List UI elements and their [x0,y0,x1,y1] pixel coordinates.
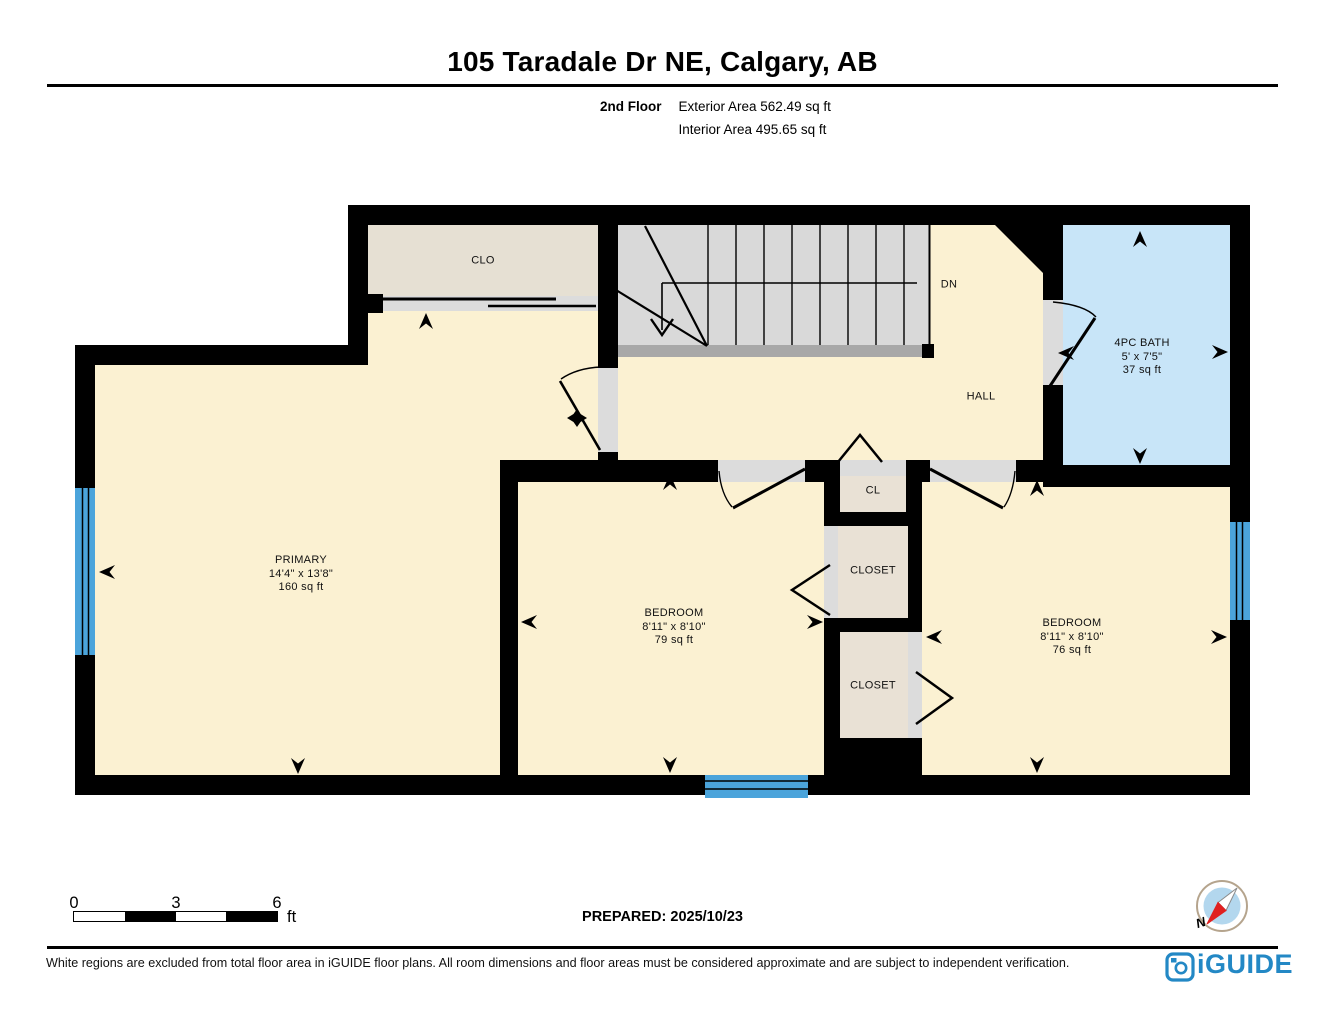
bath-dimensions: 5' x 7'5" [1114,350,1169,364]
label-cl: CL [866,484,881,498]
label-bath: 4PC BATH 5' x 7'5" 37 sq ft [1114,337,1169,378]
label-closet-middle: CLOSET [850,564,896,578]
label-bedroom-right: BEDROOM 8'11" x 8'10" 76 sq ft [1040,617,1103,658]
label-clo: CLO [471,254,495,268]
footer-divider [47,946,1278,949]
label-primary: PRIMARY 14'4" x 13'8" 160 sq ft [269,554,333,595]
bedroom-middle-dimensions: 8'11" x 8'10" [642,620,705,634]
bath-name: 4PC BATH [1114,337,1169,351]
primary-area: 160 sq ft [269,581,333,595]
bedroom-middle-area: 79 sq ft [642,634,705,648]
iguide-logo-text: iGUIDE [1197,949,1293,980]
primary-name: PRIMARY [269,554,333,568]
bedroom-right-name: BEDROOM [1040,617,1103,631]
primary-dimensions: 14'4" x 13'8" [269,567,333,581]
label-bedroom-middle: BEDROOM 8'11" x 8'10" 79 sq ft [642,607,705,648]
label-closet-lower: CLOSET [850,679,896,693]
bedroom-right-area: 76 sq ft [1040,644,1103,658]
iguide-logo-icon [1167,954,1193,980]
bedroom-middle-name: BEDROOM [642,607,705,621]
label-hall: HALL [967,390,996,404]
bath-area: 37 sq ft [1114,364,1169,378]
staircase [616,225,934,358]
label-stairs-dn: DN [941,278,958,292]
bedroom-right-dimensions: 8'11" x 8'10" [1040,630,1103,644]
footer-disclaimer: White regions are excluded from total fl… [46,956,1069,970]
prepared-date: PREPARED: 2025/10/23 [0,909,1325,925]
floorplan-drawing [0,0,1325,1024]
clo-closet [368,225,598,313]
floorplan-page: 105 Taradale Dr NE, Calgary, AB 2nd Floo… [0,0,1325,1024]
